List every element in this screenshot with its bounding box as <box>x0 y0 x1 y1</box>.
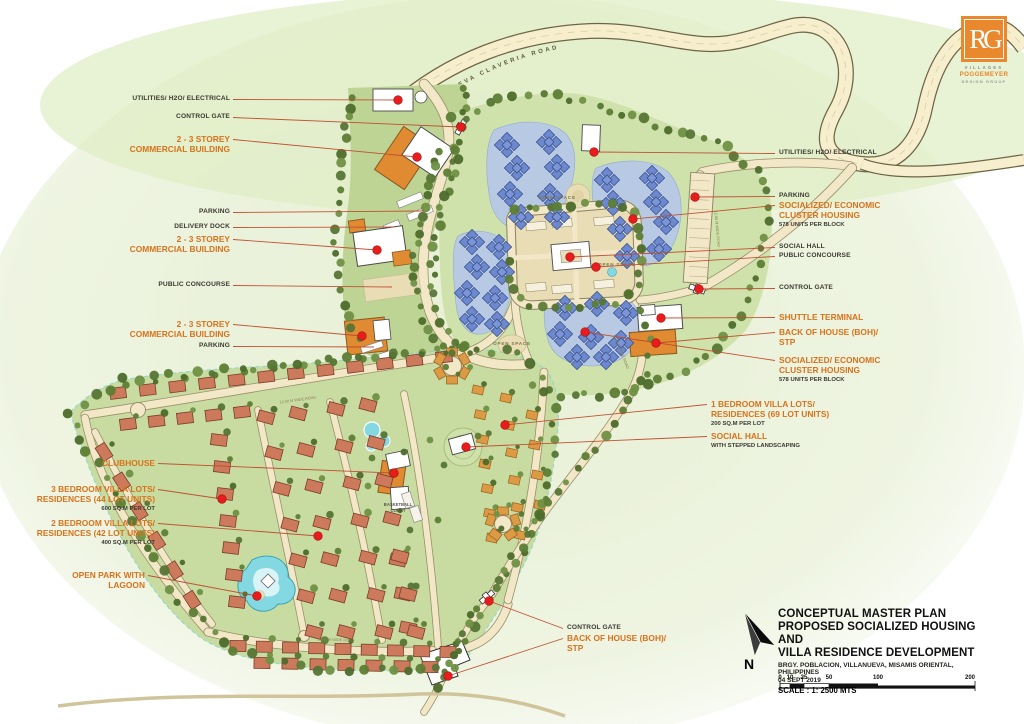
marker-dot-commercial-3 <box>358 332 367 341</box>
marker-dot-social-hall-right <box>566 253 575 262</box>
marker-dot-control-gate-right <box>695 285 704 294</box>
north-letter: N <box>744 656 754 672</box>
marker-dot-social-hall-stepped <box>462 443 471 452</box>
marker-dot-cluster-housing-1 <box>629 215 638 224</box>
marker-dot-villa-1br <box>501 421 510 430</box>
marker-dot-control-gate-bottom <box>485 597 494 606</box>
marker-dot-cluster-housing-2 <box>581 328 590 337</box>
svg-text:50: 50 <box>826 675 833 681</box>
site-plan-drawing: VILLANUEVA CLAVERIA ROAD OPEN SPACEOPEN … <box>0 0 1024 724</box>
svg-text:200: 200 <box>965 675 976 681</box>
svg-text:OPEN SPACE: OPEN SPACE <box>493 341 531 346</box>
master-plan-sheet: VILLANUEVA CLAVERIA ROAD OPEN SPACEOPEN … <box>0 0 1024 724</box>
marker-dot-public-concourse-right <box>592 263 601 272</box>
marker-dot-commercial-1 <box>413 153 422 162</box>
marker-dot-control-gate-left <box>457 123 466 132</box>
marker-dot-utilities-right <box>590 148 599 157</box>
marker-dot-villa-3br <box>218 495 227 504</box>
marker-dot-clubhouse <box>390 469 399 478</box>
svg-text:25: 25 <box>801 675 808 681</box>
marker-dot-parking-right <box>691 193 700 202</box>
marker-dot-villa-2br <box>314 532 323 541</box>
marker-dot-open-park <box>253 592 262 601</box>
marker-dot-utilities-left <box>394 96 403 105</box>
svg-text:BASKETBALL: BASKETBALL <box>384 502 413 507</box>
marker-dot-commercial-2 <box>373 246 382 255</box>
svg-text:10: 10 <box>787 675 794 681</box>
svg-text:COURT: COURT <box>391 508 406 513</box>
svg-text:OPEN SPACE: OPEN SPACE <box>538 195 576 200</box>
marker-dot-shuttle-terminal <box>657 314 666 323</box>
marker-dot-boh-right <box>652 339 661 348</box>
svg-text:100: 100 <box>873 675 884 681</box>
marker-dot-boh-bottom <box>444 672 453 681</box>
